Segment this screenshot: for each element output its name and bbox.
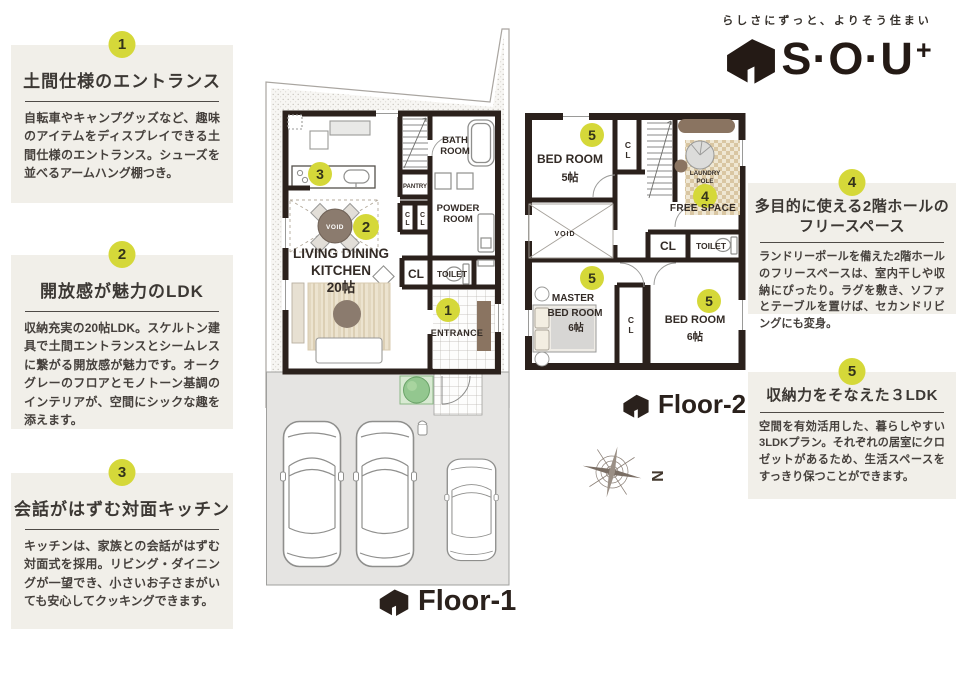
room-label-bath-1: BATH (442, 135, 468, 146)
feature-box-3: 3 会話がはずむ対面キッチン キッチンは、家族との会話がはずむ対面式を採用。リビ… (11, 473, 233, 629)
room-label-freespace: FREE SPACE (670, 203, 736, 214)
floor2-plan: 5 4 5 5 BED ROOM 5帖 C L LAUNDRY POLE FRE… (518, 95, 753, 380)
feature-badge-5: 5 (839, 358, 866, 385)
floor1-label: Floor-1 (376, 584, 516, 618)
room-label-cl-b1: C (420, 212, 425, 219)
plan-badge-4: 4 (701, 188, 709, 204)
feature-title-1: 土間仕様のエントランス (11, 71, 233, 93)
feature-body-1: 自転車やキャンプグッズなど、趣味のアイテムをディスプレイできる土間仕様のエントラ… (11, 109, 233, 182)
plan-badge-5a: 5 (588, 127, 596, 143)
room-label-toilet2: TOILET (696, 241, 727, 251)
divider (25, 101, 219, 102)
feature-body-3: キッチンは、家族との会話がはずむ対面式を採用。リビング・ダイニングが一望でき、小… (11, 537, 233, 610)
room-label-cl-bottom-1: C (628, 315, 634, 325)
feature-title-3: 会話がはずむ対面キッチン (11, 499, 233, 521)
room-label-master-3: 6帖 (568, 321, 584, 334)
logo-plus: + (916, 37, 933, 64)
car (354, 422, 417, 567)
feature-title-4: 多目的に使える2階ホールのフリースペース (748, 197, 956, 236)
room-label-cl-top-1: C (625, 140, 631, 150)
floor2-label-text: Floor-2 (658, 389, 746, 420)
bathtub (468, 120, 494, 166)
room-label-laundry-1: LAUNDRY (690, 170, 721, 177)
brand-house-icon (721, 30, 781, 87)
room-label-powder-1: POWDER (437, 203, 480, 214)
divider (760, 412, 944, 413)
feature-badge-3: 3 (109, 459, 136, 486)
compass-north-label: N (648, 470, 665, 482)
room-label-cl-b2: L (420, 220, 425, 227)
floor1-label-text: Floor-1 (418, 585, 516, 618)
room-label-entrance: ENTRANCE (431, 328, 483, 338)
room-label-ldk-3: 20帖 (327, 279, 356, 295)
shoe-cabinet (477, 301, 491, 351)
room-label-cl: CL (408, 267, 424, 281)
room-label-pantry: PANTRY (403, 184, 427, 190)
room-label-bed6-1: BED ROOM (665, 314, 726, 326)
plan-badge-3: 3 (316, 166, 324, 182)
porch (434, 372, 482, 415)
floor2-label: Floor-2 (620, 389, 746, 420)
feature-body-4: ランドリーポールを備えた2階ホールのフリースペースは、室内干しや収納にぴったり。… (748, 249, 956, 333)
room-label-bath-2: ROOM (440, 146, 470, 157)
room-label-void1: VOID (326, 224, 344, 231)
floor1-house-icon (376, 584, 412, 618)
floor1-plan: VOID 3 2 1 BATH ROOM PANTRY POWDER ROOM … (252, 18, 514, 590)
room-label-powder-2: ROOM (443, 214, 473, 225)
plan-badge-2: 2 (362, 219, 370, 236)
brand-header: らしさにずっと、よりそう住まい S·O·U+ (700, 12, 954, 87)
divider (760, 242, 944, 243)
divider (25, 311, 219, 312)
room-label-cl-a2: L (405, 220, 410, 227)
room-label-ldk-1: LIVING DINING (293, 246, 389, 261)
car (281, 422, 344, 567)
brand-tagline: らしさにずっと、よりそう住まい (700, 12, 954, 28)
feature-badge-4: 4 (839, 169, 866, 196)
room-label-ldk-2: KITCHEN (311, 263, 371, 278)
room-label-toilet: TOILET (437, 269, 468, 279)
feature-badge-2: 2 (109, 241, 136, 268)
feature-body-5: 空間を有効活用した、暮らしやすい3LDKプラン。それぞれの居室にクロゼットがある… (748, 419, 956, 486)
feature-body-2: 収納充実の20帖LDK。スケルトン建具で土間エントランスとシームレスに繋がる開放… (11, 319, 233, 429)
plan-badge-5b: 5 (588, 270, 596, 286)
room-label-laundry-2: POLE (696, 178, 713, 185)
feature-title-5: 収納力をそなえた３LDK (748, 386, 956, 406)
car (445, 459, 499, 561)
compass: N (570, 436, 670, 508)
feature-box-5: 5 収納力をそなえた３LDK 空間を有効活用した、暮らしやすい3LDKプラン。そ… (748, 372, 956, 499)
plan-badge-1: 1 (444, 302, 452, 318)
room-label-cl-bottom-2: L (628, 325, 633, 335)
feature-title-4-line2: フリースペース (799, 218, 905, 235)
floor2-house-icon (620, 390, 652, 420)
room-label-cl-top-2: L (625, 150, 630, 160)
room-label-bed5-2: 5帖 (561, 170, 578, 184)
feature-title-2: 開放感が魅力のLDK (11, 281, 233, 303)
room-label-master-2: BED ROOM (548, 308, 603, 319)
feature-box-2: 2 開放感が魅力のLDK 収納充実の20帖LDK。スケルトン建具で土間エントラン… (11, 255, 233, 429)
feature-box-4: 4 多目的に使える2階ホールのフリースペース ランドリーポールを備えた2階ホール… (748, 183, 956, 314)
plan-badge-5c: 5 (705, 293, 713, 309)
room-label-cl-a1: C (405, 212, 410, 219)
floorplan-flyer: らしさにずっと、よりそう住まい S·O·U+ 1 土間仕様のエントランス 自転車… (0, 0, 960, 700)
divider (25, 529, 219, 530)
feature-box-1: 1 土間仕様のエントランス 自転車やキャンプグッズなど、趣味のアイテムをディスプ… (11, 45, 233, 203)
logo-letters: S·O·U (781, 33, 914, 84)
water-heater-icon (418, 421, 427, 435)
feature-badge-1: 1 (109, 31, 136, 58)
brand-logo: S·O·U+ (781, 36, 932, 81)
room-label-cl2: CL (660, 239, 676, 253)
room-label-master-1: MASTER (552, 293, 595, 304)
room-label-void2: VOID (554, 231, 575, 238)
feature-title-4-line1: 多目的に使える2階ホールの (755, 198, 949, 215)
room-label-bed6-2: 6帖 (687, 330, 704, 343)
room-label-bed5-1: BED ROOM (537, 152, 603, 166)
planter (400, 376, 433, 404)
